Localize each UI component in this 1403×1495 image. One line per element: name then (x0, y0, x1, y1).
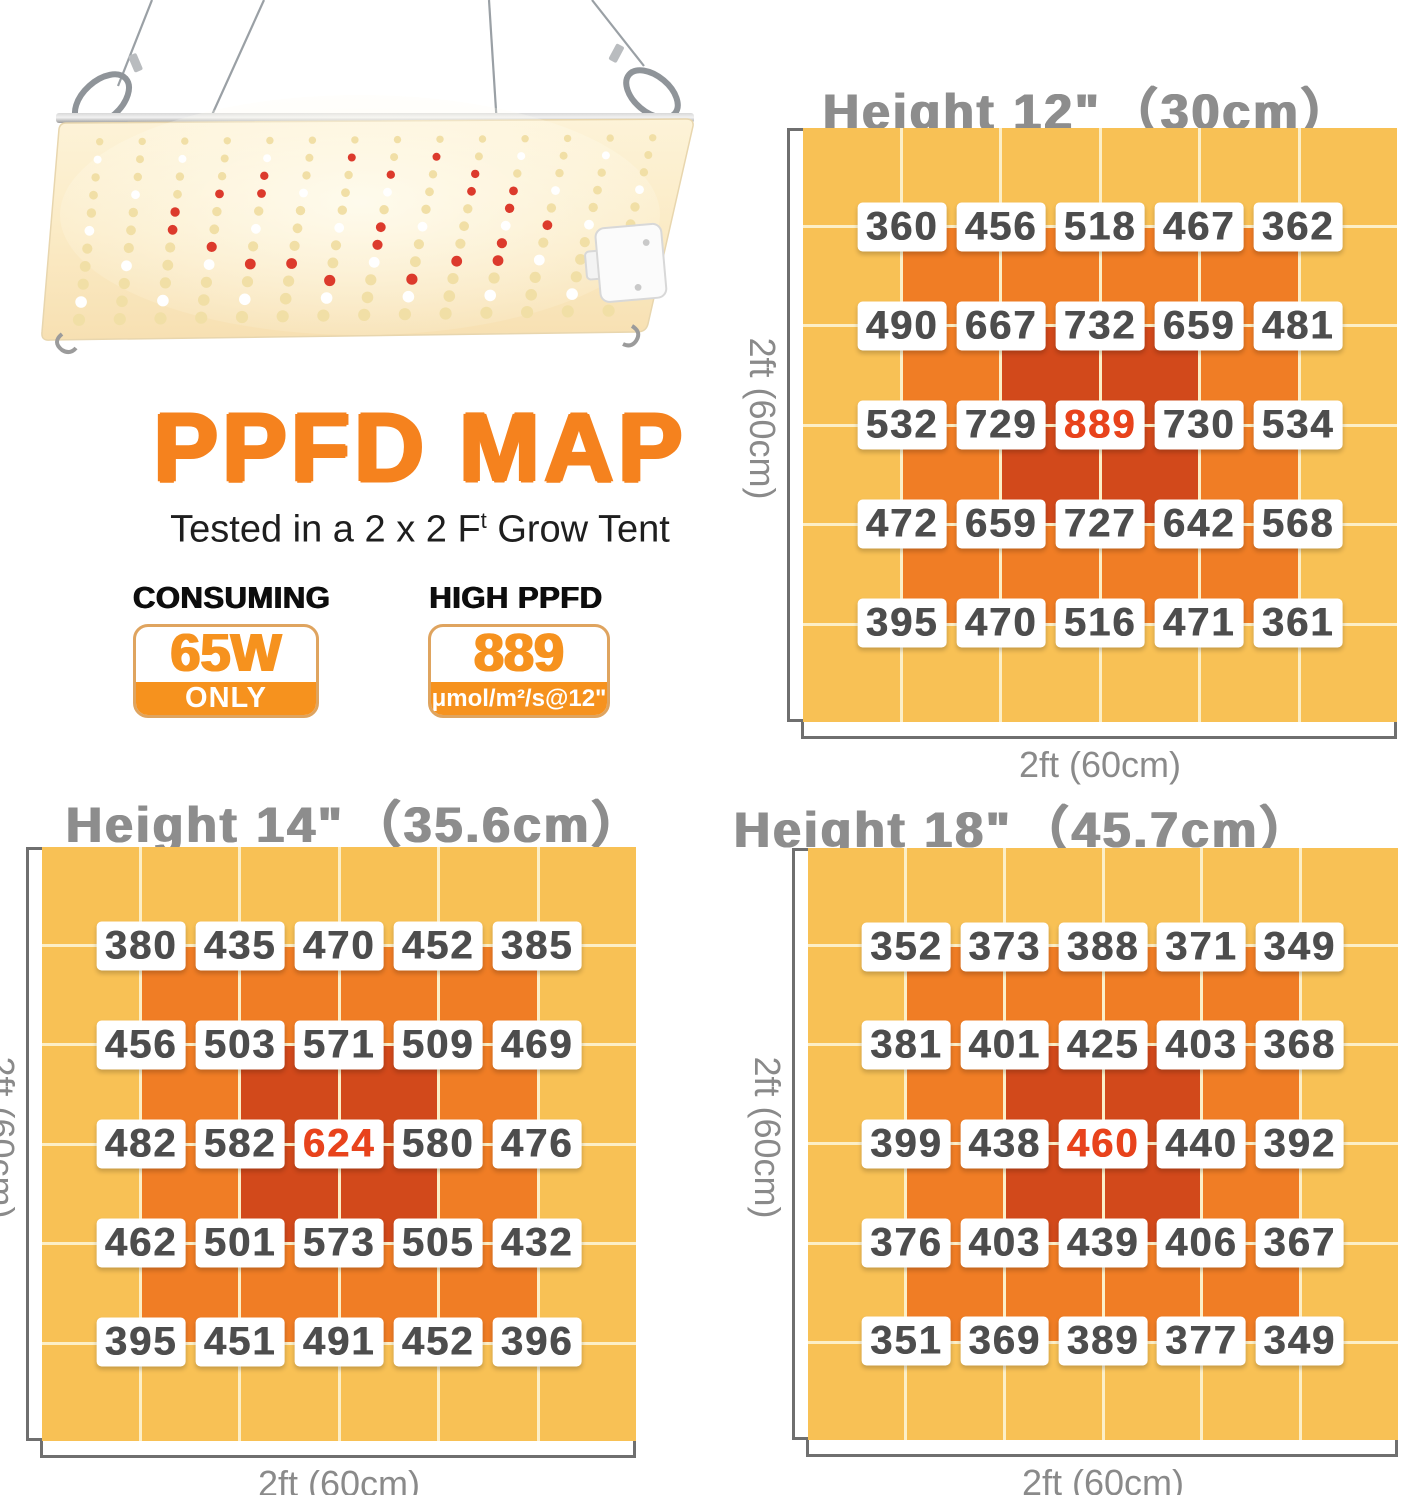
white-led-dot (94, 156, 102, 164)
high-ppfd-badge: 889 μmol/m²/s@12" (428, 624, 610, 718)
value-chip: 582 (196, 1120, 285, 1169)
led-dot (195, 312, 207, 324)
led-dot (344, 171, 352, 179)
led-dot (224, 137, 231, 144)
wire-crimp-icon (608, 43, 624, 63)
red-led-dot (245, 259, 256, 270)
led-dot (598, 169, 606, 177)
red-led-dot (543, 220, 553, 230)
led-dot (607, 134, 614, 141)
value-chip: 432 (493, 1219, 582, 1268)
led-dot (630, 202, 639, 211)
led-dot (129, 208, 138, 217)
led-dot (571, 271, 582, 282)
led-dot (91, 173, 99, 181)
led-dot (475, 152, 483, 160)
value-chip: 381 (862, 1021, 951, 1070)
led-dot (521, 135, 528, 142)
red-led-dot (509, 187, 518, 196)
red-led-dot (376, 222, 386, 232)
value-chip: 392 (1255, 1120, 1344, 1169)
value-chip: 470 (295, 922, 384, 971)
led-dot (480, 307, 492, 319)
heatmap-18in: 3523733883713493814014254033683994384604… (808, 848, 1398, 1440)
white-led-dot (334, 223, 344, 233)
red-led-dot (451, 256, 462, 267)
led-dot (242, 276, 253, 287)
led-dot (538, 238, 548, 248)
value-chip: 503 (196, 1021, 285, 1070)
led-dot (444, 290, 456, 302)
peak-value-chip: 460 (1059, 1120, 1148, 1169)
peak-value-chip: 624 (295, 1120, 384, 1169)
white-led-dot (204, 259, 215, 270)
x-axis-line (806, 1454, 1398, 1457)
value-chip: 351 (862, 1317, 951, 1366)
led-dot (440, 307, 452, 319)
white-led-dot (239, 294, 251, 306)
value-chip: 452 (394, 1318, 483, 1367)
led-dot (218, 172, 226, 180)
value-chip: 388 (1059, 922, 1148, 971)
only-strip: ONLY (136, 682, 316, 715)
red-led-dot (215, 190, 224, 199)
led-dot (555, 169, 563, 177)
red-led-dot (170, 207, 179, 216)
value-chip: 730 (1155, 401, 1244, 450)
page: PPFD MAP Tested in a 2 x 2 Ft Grow Tent … (0, 0, 1403, 1495)
value-chip: 438 (960, 1120, 1049, 1169)
led-dot (309, 137, 316, 144)
led-dot (640, 168, 648, 176)
watts-value: 65W (136, 627, 316, 679)
white-led-dot (551, 186, 560, 195)
red-led-dot (387, 171, 395, 179)
heatmap-12in: 3604565184673624906677326594815327298897… (803, 128, 1397, 722)
led-dot (119, 278, 130, 289)
white-led-dot (383, 188, 392, 197)
led-dot (201, 277, 212, 288)
led-dot (410, 256, 421, 267)
y-axis-label: 2ft (60cm) (746, 1056, 788, 1218)
x-axis-label: 2ft (60cm) (808, 1462, 1398, 1495)
y-axis-line (792, 848, 795, 1440)
tested-subtitle: Tested in a 2 x 2 Ft Grow Tent (70, 508, 770, 552)
led-dot (302, 171, 310, 179)
red-led-dot (372, 240, 382, 250)
value-chip: 568 (1254, 500, 1343, 549)
led-dot (296, 206, 305, 215)
white-led-dot (263, 154, 271, 162)
x-axis-label: 2ft (60cm) (803, 744, 1397, 786)
value-chip: 395 (97, 1318, 186, 1367)
red-led-dot (471, 170, 479, 178)
led-dot (530, 272, 541, 283)
white-led-dot (584, 220, 594, 230)
led-dot (248, 241, 258, 251)
led-dot (429, 170, 437, 178)
white-led-dot (178, 155, 186, 163)
red-led-dot (324, 275, 335, 286)
value-chip: 395 (858, 599, 947, 648)
led-dot (463, 204, 472, 213)
led-dot (198, 294, 210, 306)
value-chip: 501 (196, 1219, 285, 1268)
led-dot (305, 154, 313, 162)
white-led-dot (501, 221, 511, 231)
value-chip: 352 (862, 922, 951, 971)
red-led-dot (207, 242, 217, 252)
value-chip: 532 (858, 401, 947, 450)
value-chip: 456 (97, 1021, 186, 1070)
led-dot (341, 188, 350, 197)
red-led-dot (433, 153, 441, 161)
value-chip: 451 (196, 1318, 285, 1367)
value-chip: 481 (1254, 302, 1343, 351)
led-dot (351, 136, 358, 143)
white-led-dot (321, 292, 333, 304)
heatmap-values: 3523733883713493814014254033683994384604… (808, 848, 1398, 1440)
value-chip: 369 (960, 1317, 1049, 1366)
led-dot (365, 274, 376, 285)
x-axis-line (801, 736, 1397, 739)
value-chip: 367 (1255, 1218, 1344, 1267)
value-chip: 580 (394, 1120, 483, 1169)
red-led-dot (260, 172, 268, 180)
led-dot (338, 206, 347, 215)
red-led-dot (497, 238, 507, 248)
value-chip: 380 (97, 922, 186, 971)
ppfd-unit-strip: μmol/m²/s@12" (431, 682, 607, 715)
led-dot (116, 296, 128, 308)
led-dot (447, 273, 458, 284)
led-dot (89, 191, 98, 200)
led-dot (414, 239, 424, 249)
value-chip: 727 (1056, 500, 1145, 549)
led-dot (603, 305, 615, 317)
value-chip: 376 (862, 1218, 951, 1267)
led-dot (547, 203, 556, 212)
white-led-dot (602, 151, 610, 159)
led-dot (80, 261, 91, 272)
led-panel (42, 95, 693, 340)
led-dot (82, 244, 92, 254)
red-led-dot (505, 204, 514, 213)
value-chip: 396 (493, 1318, 582, 1367)
value-chip: 471 (1155, 599, 1244, 648)
led-dot (280, 293, 292, 305)
white-led-dot (484, 290, 496, 302)
led-dot (436, 136, 443, 143)
led-dot (589, 203, 598, 212)
red-led-dot (168, 225, 178, 235)
value-chip: 476 (493, 1120, 582, 1169)
heatmap-values: 3604565184673624906677326594815327298897… (803, 128, 1397, 722)
red-led-dot (286, 258, 297, 269)
value-chip: 377 (1157, 1317, 1246, 1366)
white-led-dot (251, 224, 261, 234)
value-chip: 368 (1255, 1021, 1344, 1070)
white-led-dot (418, 222, 428, 232)
led-dot (394, 136, 401, 143)
led-dot (126, 225, 136, 235)
led-dot (425, 187, 434, 196)
led-dot (181, 137, 188, 144)
x-axis-label: 2ft (60cm) (42, 1463, 636, 1495)
value-chip: 482 (97, 1120, 186, 1169)
led-dot (525, 289, 537, 301)
x-axis-line (40, 1455, 636, 1458)
value-chip: 362 (1254, 203, 1343, 252)
white-led-dot (131, 190, 140, 199)
led-dot (209, 224, 219, 234)
value-chip: 360 (858, 203, 947, 252)
led-dot (124, 243, 134, 253)
white-led-dot (403, 291, 415, 303)
value-chip: 534 (1254, 401, 1343, 450)
white-led-dot (517, 152, 525, 160)
led-dot (317, 310, 329, 322)
led-dot (165, 242, 175, 252)
led-dot (479, 135, 486, 142)
led-dot (564, 135, 571, 142)
led-dot (290, 241, 300, 251)
white-led-dot (566, 288, 578, 300)
white-led-dot (299, 189, 308, 198)
y-axis-line (26, 847, 29, 1441)
white-led-dot (635, 185, 644, 194)
led-dot (73, 314, 85, 326)
led-dot (136, 155, 144, 163)
value-chip: 349 (1255, 1317, 1344, 1366)
led-dot (379, 205, 388, 214)
led-dot (221, 155, 229, 163)
led-dot (283, 276, 294, 287)
led-dot (331, 240, 341, 250)
white-led-dot (85, 226, 95, 236)
led-dot (513, 169, 521, 177)
value-chip: 462 (97, 1219, 186, 1268)
value-chip: 349 (1255, 922, 1344, 971)
heatmap-values: 3804354704523854565035715094694825826245… (42, 847, 636, 1441)
value-chip: 667 (957, 302, 1046, 351)
led-dot (154, 312, 166, 324)
value-chip: 389 (1059, 1317, 1148, 1366)
wire-crimp-icon (128, 53, 143, 73)
led-dot (87, 208, 96, 217)
red-led-dot (467, 187, 476, 196)
white-led-dot (121, 260, 132, 271)
led-dot (96, 138, 103, 145)
led-dot (644, 151, 652, 159)
value-chip: 403 (960, 1218, 1049, 1267)
led-dot (560, 152, 568, 160)
grow-light-photo (0, 0, 710, 385)
consuming-badge: 65W ONLY (133, 624, 319, 718)
red-led-dot (257, 189, 266, 198)
led-dot (649, 134, 656, 141)
value-chip: 505 (394, 1219, 483, 1268)
value-chip: 573 (295, 1219, 384, 1268)
led-dot (160, 277, 171, 288)
consuming-heading: CONSUMING (133, 580, 313, 616)
value-chip: 401 (960, 1021, 1049, 1070)
white-led-dot (75, 296, 87, 308)
ppfd-map-title: PPFD MAP (70, 392, 770, 504)
led-dot (399, 308, 411, 320)
white-led-dot (157, 295, 169, 307)
red-led-dot (493, 255, 504, 266)
y-axis-label: 2ft (60cm) (0, 1056, 22, 1218)
value-chip: 406 (1157, 1218, 1246, 1267)
value-chip: 518 (1056, 203, 1145, 252)
led-dot (134, 173, 142, 181)
led-dot (593, 186, 602, 195)
value-chip: 440 (1157, 1120, 1246, 1169)
y-axis-line (787, 128, 790, 722)
led-dot (254, 206, 263, 215)
led-dot (162, 260, 173, 271)
value-chip: 373 (960, 922, 1049, 971)
led-dot (489, 272, 500, 283)
value-chip: 509 (394, 1021, 483, 1070)
led-dot (362, 292, 374, 304)
value-chip: 469 (493, 1021, 582, 1070)
led-dot (358, 309, 370, 321)
led-dot (266, 137, 273, 144)
value-chip: 399 (862, 1120, 951, 1169)
led-dot (176, 172, 184, 180)
heatmap-14in: 3804354704523854565035715094694825826245… (42, 847, 636, 1441)
white-led-dot (369, 257, 380, 268)
value-chip: 435 (196, 922, 285, 971)
red-led-dot (406, 274, 417, 285)
white-led-dot (534, 255, 545, 266)
led-dot (236, 311, 248, 323)
value-chip: 729 (957, 401, 1046, 450)
ppfd-value: 889 (431, 627, 607, 679)
led-dot (114, 313, 126, 325)
value-chip: 642 (1155, 500, 1244, 549)
value-chip: 467 (1155, 203, 1244, 252)
led-dot (580, 237, 590, 247)
led-dot (173, 190, 182, 199)
value-chip: 732 (1056, 302, 1145, 351)
value-chip: 385 (493, 922, 582, 971)
value-chip: 439 (1059, 1218, 1148, 1267)
value-chip: 472 (858, 500, 947, 549)
value-chip: 403 (1157, 1021, 1246, 1070)
led-dot (78, 279, 89, 290)
value-chip: 470 (957, 599, 1046, 648)
led-dot (459, 221, 469, 231)
value-chip: 425 (1059, 1021, 1148, 1070)
led-dot (562, 305, 574, 317)
led-dot (212, 207, 221, 216)
value-chip: 659 (1155, 302, 1244, 351)
value-chip: 371 (1157, 922, 1246, 971)
value-chip: 491 (295, 1318, 384, 1367)
value-chip: 516 (1056, 599, 1145, 648)
led-dot (390, 153, 398, 161)
value-chip: 452 (394, 922, 483, 971)
led-dot (139, 138, 146, 145)
y-axis-label: 2ft (60cm) (741, 337, 783, 499)
high-ppfd-heading: HIGH PPFD (428, 580, 604, 616)
led-dot (521, 306, 533, 318)
value-chip: 571 (295, 1021, 384, 1070)
led-dot (421, 205, 430, 214)
led-dot (455, 239, 465, 249)
led-dot (293, 223, 303, 233)
value-chip: 361 (1254, 599, 1343, 648)
value-chip: 490 (858, 302, 947, 351)
value-chip: 456 (957, 203, 1046, 252)
peak-value-chip: 889 (1056, 401, 1145, 450)
led-dot (328, 258, 339, 269)
led-dot (277, 310, 289, 322)
red-led-dot (348, 154, 356, 162)
value-chip: 659 (957, 500, 1046, 549)
